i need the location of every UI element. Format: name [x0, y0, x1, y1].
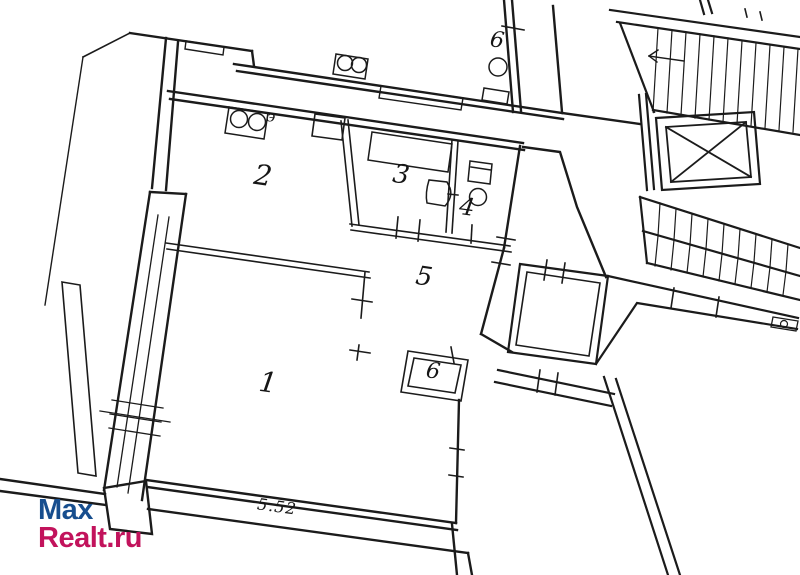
stove-icon — [225, 107, 268, 139]
watermark-line1: Max — [38, 496, 142, 524]
apartment-walls — [0, 0, 640, 575]
floor-plan: 1 2 3 4 5 6 6 э 5.52 Max Realt.ru — [0, 0, 800, 575]
toilet-icon — [482, 58, 509, 104]
building-core-walls — [495, 0, 800, 575]
watermark-logo: Max Realt.ru — [38, 496, 142, 553]
plan-drawing — [0, 0, 800, 575]
elevator-icon — [656, 112, 760, 190]
stove-icon — [333, 54, 368, 79]
room-2-label: 2 — [252, 161, 274, 191]
direction-arrow-icon — [649, 50, 684, 62]
watermark-line2: Realt.ru — [38, 524, 142, 552]
